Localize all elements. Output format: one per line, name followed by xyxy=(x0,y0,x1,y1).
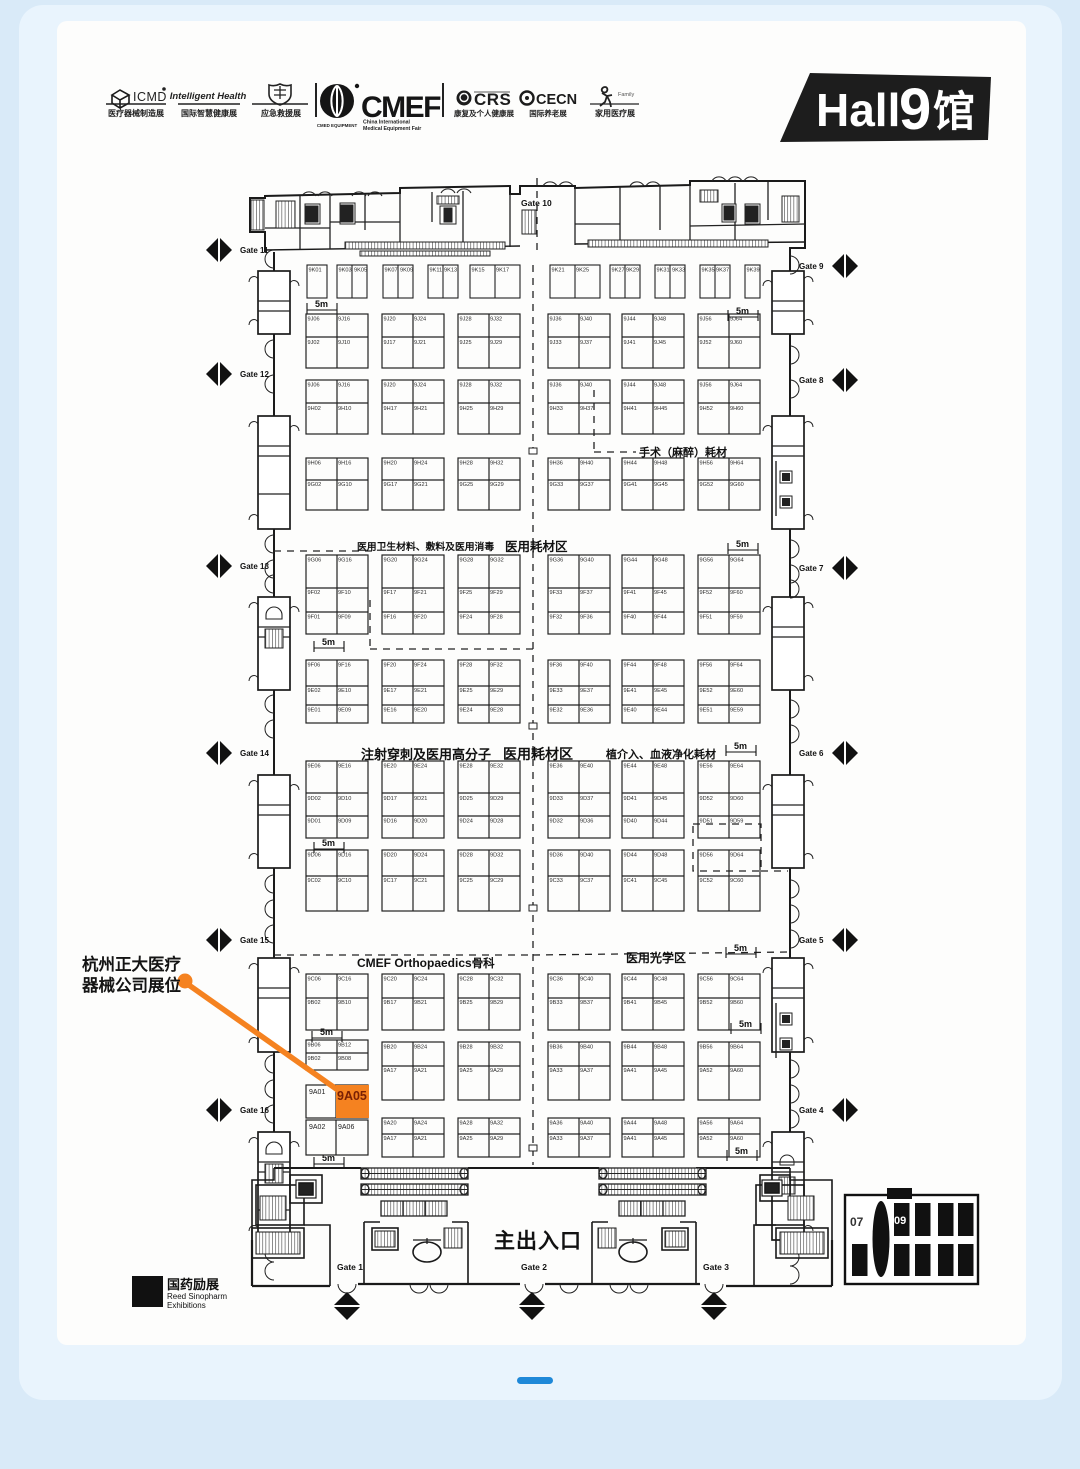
svg-text:9E41: 9E41 xyxy=(624,688,637,694)
svg-text:9J25: 9J25 xyxy=(460,340,472,346)
svg-text:9C44: 9C44 xyxy=(624,977,637,983)
svg-text:9A41: 9A41 xyxy=(624,1068,637,1074)
svg-text:9G37: 9G37 xyxy=(580,482,594,488)
svg-text:9J17: 9J17 xyxy=(384,340,396,346)
svg-text:9A60: 9A60 xyxy=(730,1136,743,1142)
svg-text:9D24: 9D24 xyxy=(414,853,427,859)
svg-text:9D20: 9D20 xyxy=(414,819,427,825)
svg-text:9A37: 9A37 xyxy=(580,1068,593,1074)
svg-text:9D44: 9D44 xyxy=(654,819,667,825)
svg-text:9B33: 9B33 xyxy=(550,1000,563,1006)
svg-text:9G48: 9G48 xyxy=(654,558,668,564)
svg-text:9A33: 9A33 xyxy=(550,1136,563,1142)
svg-text:9G60: 9G60 xyxy=(730,482,744,488)
svg-text:9F29: 9F29 xyxy=(490,590,503,596)
svg-text:9B06: 9B06 xyxy=(308,1043,321,1049)
svg-text:9G41: 9G41 xyxy=(624,482,638,488)
svg-text:9D02: 9D02 xyxy=(308,796,321,802)
svg-text:9D06: 9D06 xyxy=(308,853,321,859)
svg-text:9A52: 9A52 xyxy=(700,1136,713,1142)
svg-text:9G21: 9G21 xyxy=(414,482,428,488)
svg-text:9A21: 9A21 xyxy=(414,1068,427,1074)
svg-text:9A17: 9A17 xyxy=(384,1136,397,1142)
svg-text:医用卫生材料、敷料及医用消毒: 医用卫生材料、敷料及医用消毒 xyxy=(357,540,494,553)
svg-text:9F28: 9F28 xyxy=(490,615,503,621)
svg-text:9J56: 9J56 xyxy=(700,317,712,323)
svg-text:9G45: 9G45 xyxy=(654,482,668,488)
svg-text:9J64: 9J64 xyxy=(730,383,742,389)
svg-text:9E09: 9E09 xyxy=(338,708,351,714)
svg-text:9B32: 9B32 xyxy=(490,1045,503,1051)
svg-text:ICMD: ICMD xyxy=(133,90,167,104)
svg-text:07: 07 xyxy=(850,1215,864,1229)
svg-text:9E28: 9E28 xyxy=(490,708,503,714)
svg-text:9J41: 9J41 xyxy=(624,340,636,346)
svg-text:国药励展: 国药励展 xyxy=(167,1277,220,1292)
svg-text:9J37: 9J37 xyxy=(580,340,592,346)
svg-text:9H28: 9H28 xyxy=(460,461,473,467)
svg-text:9J16: 9J16 xyxy=(338,383,350,389)
svg-text:9K25: 9K25 xyxy=(576,268,589,274)
svg-text:9C56: 9C56 xyxy=(700,977,713,983)
svg-text:9C60: 9C60 xyxy=(730,878,743,884)
svg-text:9D44: 9D44 xyxy=(624,853,637,859)
svg-text:9J32: 9J32 xyxy=(490,317,502,323)
svg-text:9A33: 9A33 xyxy=(550,1068,563,1074)
svg-text:9F06: 9F06 xyxy=(308,663,321,669)
svg-text:9H36: 9H36 xyxy=(550,461,563,467)
svg-text:9D40: 9D40 xyxy=(624,819,637,825)
svg-text:9H06: 9H06 xyxy=(308,461,321,467)
svg-text:5m: 5m xyxy=(320,1027,333,1037)
svg-text:9E32: 9E32 xyxy=(490,764,503,770)
svg-text:9F16: 9F16 xyxy=(338,663,351,669)
svg-text:9K07: 9K07 xyxy=(385,268,398,274)
svg-text:9G64: 9G64 xyxy=(730,558,744,564)
svg-text:9D24: 9D24 xyxy=(460,819,473,825)
svg-text:9J44: 9J44 xyxy=(624,317,636,323)
svg-text:9J40: 9J40 xyxy=(580,317,592,323)
svg-text:9F20: 9F20 xyxy=(414,615,427,621)
svg-text:9J60: 9J60 xyxy=(730,340,742,346)
svg-text:9F36: 9F36 xyxy=(580,615,593,621)
svg-text:9H64: 9H64 xyxy=(730,461,743,467)
svg-text:9F36: 9F36 xyxy=(550,663,563,669)
svg-text:9D40: 9D40 xyxy=(580,853,593,859)
svg-text:9E06: 9E06 xyxy=(308,764,321,770)
svg-text:9D28: 9D28 xyxy=(490,819,503,825)
svg-text:5m: 5m xyxy=(315,299,328,309)
svg-text:9D41: 9D41 xyxy=(624,796,637,802)
svg-text:9H33: 9H33 xyxy=(550,406,563,412)
svg-text:9B52: 9B52 xyxy=(700,1000,713,1006)
svg-text:9K39: 9K39 xyxy=(747,268,760,274)
svg-text:9A60: 9A60 xyxy=(730,1068,743,1074)
svg-text:9C64: 9C64 xyxy=(730,977,743,983)
svg-text:9B37: 9B37 xyxy=(580,1000,593,1006)
svg-text:9B28: 9B28 xyxy=(460,1045,473,1051)
svg-text:9A01: 9A01 xyxy=(309,1089,325,1096)
svg-text:Gate 14: Gate 14 xyxy=(240,749,269,758)
svg-text:9A44: 9A44 xyxy=(624,1121,637,1127)
svg-text:9E28: 9E28 xyxy=(460,764,473,770)
svg-text:9H52: 9H52 xyxy=(700,406,713,412)
svg-text:9D45: 9D45 xyxy=(654,796,667,802)
svg-text:5m: 5m xyxy=(734,741,747,751)
svg-text:Family: Family xyxy=(618,92,634,98)
svg-text:9J20: 9J20 xyxy=(384,383,396,389)
svg-text:9K13: 9K13 xyxy=(444,268,457,274)
svg-text:9B17: 9B17 xyxy=(384,1000,397,1006)
svg-text:9J36: 9J36 xyxy=(550,317,562,323)
svg-text:9B64: 9B64 xyxy=(730,1045,743,1051)
svg-text:Gate 5: Gate 5 xyxy=(799,936,824,945)
svg-text:9A48: 9A48 xyxy=(654,1121,667,1127)
svg-text:9J21: 9J21 xyxy=(414,340,426,346)
svg-text:5m: 5m xyxy=(322,838,335,848)
svg-text:9F44: 9F44 xyxy=(624,663,637,669)
svg-text:9B10: 9B10 xyxy=(338,1000,351,1006)
svg-text:9K21: 9K21 xyxy=(552,268,565,274)
svg-text:9B21: 9B21 xyxy=(414,1000,427,1006)
svg-text:9A45: 9A45 xyxy=(654,1068,667,1074)
svg-text:9A20: 9A20 xyxy=(384,1121,397,1127)
svg-text:9E36: 9E36 xyxy=(550,764,563,770)
svg-text:9D56: 9D56 xyxy=(700,853,713,859)
svg-text:CECN: CECN xyxy=(536,92,577,108)
svg-text:9J33: 9J33 xyxy=(550,340,562,346)
svg-text:9B02: 9B02 xyxy=(308,1000,321,1006)
svg-text:9J48: 9J48 xyxy=(654,383,666,389)
svg-text:9J64: 9J64 xyxy=(730,317,742,323)
svg-text:9F16: 9F16 xyxy=(384,615,397,621)
svg-text:9D32: 9D32 xyxy=(550,819,563,825)
svg-text:9E32: 9E32 xyxy=(550,708,563,714)
svg-text:9H25: 9H25 xyxy=(460,406,473,412)
svg-text:9A28: 9A28 xyxy=(460,1121,473,1127)
svg-text:9A40: 9A40 xyxy=(580,1121,593,1127)
svg-text:9A24: 9A24 xyxy=(414,1121,427,1127)
svg-text:9E25: 9E25 xyxy=(460,688,473,694)
svg-text:9J28: 9J28 xyxy=(460,383,472,389)
svg-text:9F37: 9F37 xyxy=(580,590,593,596)
svg-text:9E17: 9E17 xyxy=(384,688,397,694)
svg-text:9H32: 9H32 xyxy=(490,461,503,467)
svg-text:9A41: 9A41 xyxy=(624,1136,637,1142)
svg-text:9E51: 9E51 xyxy=(700,708,713,714)
svg-text:9C36: 9C36 xyxy=(550,977,563,983)
svg-text:9F41: 9F41 xyxy=(624,590,637,596)
svg-text:医用耗材区: 医用耗材区 xyxy=(505,539,568,554)
svg-text:5m: 5m xyxy=(735,1146,748,1156)
svg-text:9G02: 9G02 xyxy=(308,482,322,488)
svg-text:9A17: 9A17 xyxy=(384,1068,397,1074)
svg-text:5m: 5m xyxy=(739,1019,752,1029)
svg-text:9A29: 9A29 xyxy=(490,1136,503,1142)
svg-text:9A06: 9A06 xyxy=(338,1124,354,1131)
svg-text:CMEF Orthopaedics骨科: CMEF Orthopaedics骨科 xyxy=(357,956,495,970)
svg-text:9F01: 9F01 xyxy=(308,615,321,621)
svg-text:9D33: 9D33 xyxy=(550,796,563,802)
svg-text:9B20: 9B20 xyxy=(384,1045,397,1051)
svg-text:Gate 15: Gate 15 xyxy=(240,936,269,945)
svg-text:9E48: 9E48 xyxy=(654,764,667,770)
svg-text:9E24: 9E24 xyxy=(460,708,473,714)
svg-text:Gate 12: Gate 12 xyxy=(240,370,269,379)
svg-text:9C21: 9C21 xyxy=(414,878,427,884)
svg-text:5m: 5m xyxy=(322,637,335,647)
svg-text:9D48: 9D48 xyxy=(654,853,667,859)
svg-text:9B12: 9B12 xyxy=(338,1043,351,1049)
svg-text:9G17: 9G17 xyxy=(384,482,398,488)
svg-text:9A45: 9A45 xyxy=(654,1136,667,1142)
svg-text:9F17: 9F17 xyxy=(384,590,397,596)
svg-text:9H44: 9H44 xyxy=(624,461,637,467)
svg-text:9J02: 9J02 xyxy=(308,340,320,346)
svg-text:9G52: 9G52 xyxy=(700,482,714,488)
svg-text:手术（麻醉）耗材: 手术（麻醉）耗材 xyxy=(639,445,727,459)
svg-text:器械公司展位: 器械公司展位 xyxy=(81,975,182,995)
svg-text:9C25: 9C25 xyxy=(460,878,473,884)
svg-text:Hall: Hall xyxy=(816,84,900,136)
svg-text:9J28: 9J28 xyxy=(460,317,472,323)
svg-text:9F44: 9F44 xyxy=(654,615,667,621)
svg-text:康复及个人健康展: 康复及个人健康展 xyxy=(454,108,514,118)
svg-text:9F25: 9F25 xyxy=(460,590,473,596)
svg-text:9B40: 9B40 xyxy=(580,1045,593,1051)
svg-text:9G36: 9G36 xyxy=(550,558,564,564)
svg-text:9C16: 9C16 xyxy=(338,977,351,983)
svg-text:9C41: 9C41 xyxy=(624,878,637,884)
svg-text:9H02: 9H02 xyxy=(308,406,321,412)
svg-text:9J24: 9J24 xyxy=(414,383,426,389)
svg-text:9G33: 9G33 xyxy=(550,482,564,488)
svg-text:Gate 9: Gate 9 xyxy=(799,262,824,271)
svg-text:9K29: 9K29 xyxy=(626,268,639,274)
svg-text:9E64: 9E64 xyxy=(730,764,743,770)
svg-text:9D16: 9D16 xyxy=(338,853,351,859)
svg-text:9D51: 9D51 xyxy=(700,819,713,825)
svg-text:9K05: 9K05 xyxy=(354,268,367,274)
svg-text:09: 09 xyxy=(894,1215,906,1227)
svg-text:9D21: 9D21 xyxy=(414,796,427,802)
svg-text:9G28: 9G28 xyxy=(460,558,474,564)
svg-text:9J44: 9J44 xyxy=(624,383,636,389)
svg-text:9D32: 9D32 xyxy=(490,853,503,859)
svg-text:9F56: 9F56 xyxy=(700,663,713,669)
svg-text:Gate 11: Gate 11 xyxy=(240,246,269,255)
svg-text:9A05: 9A05 xyxy=(337,1089,367,1103)
svg-text:9C28: 9C28 xyxy=(460,977,473,983)
svg-text:9K31: 9K31 xyxy=(657,268,670,274)
svg-text:9J56: 9J56 xyxy=(700,383,712,389)
svg-text:9C33: 9C33 xyxy=(550,878,563,884)
svg-text:9K01: 9K01 xyxy=(309,268,322,274)
svg-text:9C32: 9C32 xyxy=(490,977,503,983)
svg-text:9G40: 9G40 xyxy=(580,558,594,564)
svg-text:9F48: 9F48 xyxy=(654,663,667,669)
svg-text:9F64: 9F64 xyxy=(730,663,743,669)
svg-text:9H20: 9H20 xyxy=(384,461,397,467)
svg-text:9A64: 9A64 xyxy=(730,1121,743,1127)
svg-text:注射穿刺及医用高分子: 注射穿刺及医用高分子 xyxy=(361,747,491,762)
svg-text:Gate 2: Gate 2 xyxy=(521,1262,547,1272)
svg-text:9G20: 9G20 xyxy=(384,558,398,564)
svg-text:Gate 1: Gate 1 xyxy=(337,1262,363,1272)
svg-text:9G10: 9G10 xyxy=(338,482,352,488)
svg-text:应急救援展: 应急救援展 xyxy=(261,108,301,118)
svg-text:9J32: 9J32 xyxy=(490,383,502,389)
svg-text:国际智慧健康展: 国际智慧健康展 xyxy=(181,108,237,118)
svg-text:9G32: 9G32 xyxy=(490,558,504,564)
svg-text:9G44: 9G44 xyxy=(624,558,638,564)
svg-text:9A56: 9A56 xyxy=(700,1121,713,1127)
svg-text:9D52: 9D52 xyxy=(700,796,713,802)
svg-text:9B45: 9B45 xyxy=(654,1000,667,1006)
svg-text:9J45: 9J45 xyxy=(654,340,666,346)
svg-text:9E01: 9E01 xyxy=(308,708,321,714)
svg-text:9H48: 9H48 xyxy=(654,461,667,467)
svg-text:9E60: 9E60 xyxy=(730,688,743,694)
svg-text:9D16: 9D16 xyxy=(384,819,397,825)
svg-text:9B08: 9B08 xyxy=(338,1056,351,1062)
svg-text:植介入、血液净化耗材: 植介入、血液净化耗材 xyxy=(605,747,716,761)
svg-text:9A52: 9A52 xyxy=(700,1068,713,1074)
svg-text:9D36: 9D36 xyxy=(550,853,563,859)
svg-text:9H41: 9H41 xyxy=(624,406,637,412)
svg-text:9J06: 9J06 xyxy=(308,383,320,389)
svg-text:医疗器械制造展: 医疗器械制造展 xyxy=(108,108,164,118)
svg-text:9D64: 9D64 xyxy=(730,853,743,859)
svg-text:9J52: 9J52 xyxy=(700,340,712,346)
svg-text:5m: 5m xyxy=(734,943,747,953)
svg-text:5m: 5m xyxy=(736,539,749,549)
svg-text:9C48: 9C48 xyxy=(654,977,667,983)
svg-text:9G16: 9G16 xyxy=(338,558,352,564)
svg-text:9E33: 9E33 xyxy=(550,688,563,694)
svg-text:9B24: 9B24 xyxy=(414,1045,427,1051)
svg-text:9A25: 9A25 xyxy=(460,1136,473,1142)
svg-text:9H17: 9H17 xyxy=(384,406,397,412)
svg-text:9G29: 9G29 xyxy=(490,482,504,488)
svg-text:9B02: 9B02 xyxy=(308,1056,321,1062)
svg-text:9E56: 9E56 xyxy=(700,764,713,770)
svg-text:杭州正大医疗: 杭州正大医疗 xyxy=(82,954,182,974)
svg-text:9J29: 9J29 xyxy=(490,340,502,346)
svg-text:9B25: 9B25 xyxy=(460,1000,473,1006)
svg-text:9C52: 9C52 xyxy=(700,878,713,884)
svg-text:9H56: 9H56 xyxy=(700,461,713,467)
svg-text:9H10: 9H10 xyxy=(338,406,351,412)
svg-text:9A32: 9A32 xyxy=(490,1121,503,1127)
svg-text:9E24: 9E24 xyxy=(414,764,427,770)
svg-text:9B29: 9B29 xyxy=(490,1000,503,1006)
svg-text:9C10: 9C10 xyxy=(338,878,351,884)
svg-text:Medical Equipment Fair: Medical Equipment Fair xyxy=(363,126,421,132)
svg-text:9D28: 9D28 xyxy=(460,853,473,859)
svg-text:9F59: 9F59 xyxy=(730,615,743,621)
svg-text:9C20: 9C20 xyxy=(384,977,397,983)
svg-text:9H21: 9H21 xyxy=(414,406,427,412)
svg-text:Gate 6: Gate 6 xyxy=(799,749,824,758)
svg-text:9A29: 9A29 xyxy=(490,1068,503,1074)
svg-text:9D60: 9D60 xyxy=(730,796,743,802)
svg-text:9C24: 9C24 xyxy=(414,977,427,983)
svg-text:9E40: 9E40 xyxy=(624,708,637,714)
svg-text:9G56: 9G56 xyxy=(700,558,714,564)
svg-text:9J48: 9J48 xyxy=(654,317,666,323)
svg-text:CRS: CRS xyxy=(474,90,511,109)
svg-text:9F60: 9F60 xyxy=(730,590,743,596)
svg-text:9: 9 xyxy=(899,77,931,142)
svg-text:9H37: 9H37 xyxy=(580,406,593,412)
svg-text:9D10: 9D10 xyxy=(338,796,351,802)
svg-text:9E52: 9E52 xyxy=(700,688,713,694)
svg-text:9D36: 9D36 xyxy=(580,819,593,825)
svg-text:9D29: 9D29 xyxy=(490,796,503,802)
svg-text:9K17: 9K17 xyxy=(496,268,509,274)
svg-text:9F45: 9F45 xyxy=(654,590,667,596)
svg-text:9F32: 9F32 xyxy=(490,663,503,669)
svg-text:9E44: 9E44 xyxy=(654,708,667,714)
svg-text:9F10: 9F10 xyxy=(338,590,351,596)
svg-text:9D37: 9D37 xyxy=(580,796,593,802)
svg-text:9A25: 9A25 xyxy=(460,1068,473,1074)
svg-text:9B44: 9B44 xyxy=(624,1045,637,1051)
svg-text:国际养老展: 国际养老展 xyxy=(529,108,567,118)
svg-text:9H29: 9H29 xyxy=(490,406,503,412)
svg-text:主出入口: 主出入口 xyxy=(494,1230,582,1253)
svg-text:Reed Sinopharm: Reed Sinopharm xyxy=(167,1292,227,1301)
svg-text:9A02: 9A02 xyxy=(309,1124,325,1131)
svg-text:9E10: 9E10 xyxy=(338,688,351,694)
svg-text:9F28: 9F28 xyxy=(460,663,473,669)
svg-text:9H60: 9H60 xyxy=(730,406,743,412)
svg-text:医用光学区: 医用光学区 xyxy=(626,950,686,965)
svg-text:9A21: 9A21 xyxy=(414,1136,427,1142)
svg-text:9K09: 9K09 xyxy=(400,268,413,274)
svg-text:9F32: 9F32 xyxy=(550,615,563,621)
svg-text:9A37: 9A37 xyxy=(580,1136,593,1142)
svg-text:Gate 16: Gate 16 xyxy=(240,1106,269,1115)
svg-text:9K35: 9K35 xyxy=(702,268,715,274)
svg-text:医用耗材区: 医用耗材区 xyxy=(503,746,573,762)
svg-text:9F40: 9F40 xyxy=(624,615,637,621)
svg-text:9D09: 9D09 xyxy=(338,819,351,825)
svg-text:9H16: 9H16 xyxy=(338,461,351,467)
svg-text:家用医疗展: 家用医疗展 xyxy=(595,108,635,118)
svg-text:CMED EQUIPMENT: CMED EQUIPMENT xyxy=(317,123,358,128)
svg-text:9C17: 9C17 xyxy=(384,878,397,884)
svg-text:9B36: 9B36 xyxy=(550,1045,563,1051)
svg-text:9E02: 9E02 xyxy=(308,688,321,694)
svg-text:9J06: 9J06 xyxy=(308,317,320,323)
svg-text:9B60: 9B60 xyxy=(730,1000,743,1006)
svg-text:9H45: 9H45 xyxy=(654,406,667,412)
svg-text:9J24: 9J24 xyxy=(414,317,426,323)
svg-text:9J10: 9J10 xyxy=(338,340,350,346)
svg-text:9C29: 9C29 xyxy=(490,878,503,884)
svg-text:Gate 3: Gate 3 xyxy=(703,1262,729,1272)
svg-text:9E20: 9E20 xyxy=(414,708,427,714)
svg-text:9D17: 9D17 xyxy=(384,796,397,802)
svg-text:9J40: 9J40 xyxy=(580,383,592,389)
svg-text:China International: China International xyxy=(363,120,411,126)
svg-text:9D20: 9D20 xyxy=(384,853,397,859)
svg-text:9A36: 9A36 xyxy=(550,1121,563,1127)
svg-text:9C40: 9C40 xyxy=(580,977,593,983)
svg-text:9C37: 9C37 xyxy=(580,878,593,884)
